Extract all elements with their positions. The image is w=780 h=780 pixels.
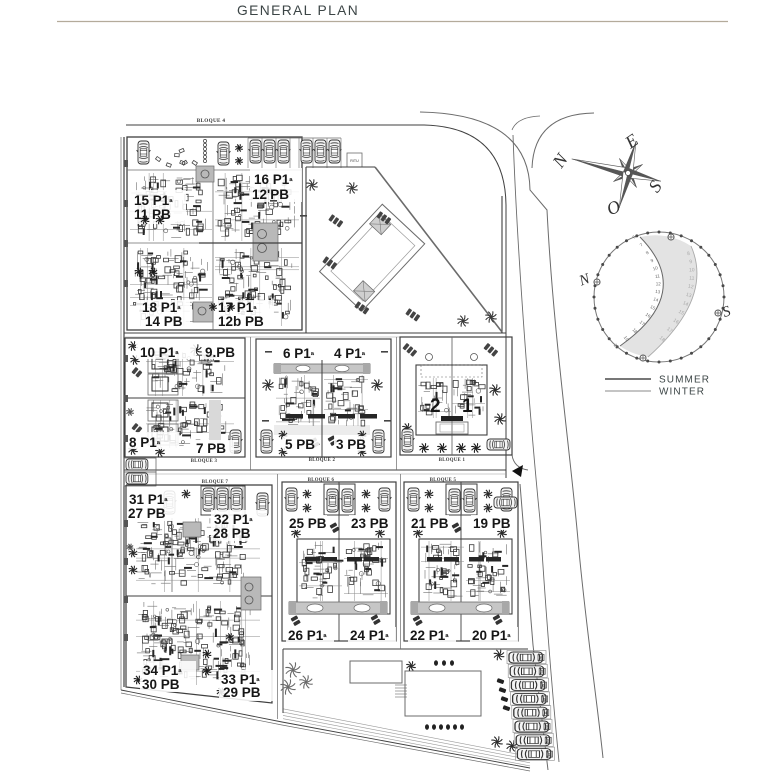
svg-text:9.PB: 9.PB <box>205 345 235 360</box>
svg-text:10: 10 <box>689 267 695 273</box>
svg-text:11 PB: 11 PB <box>134 207 171 222</box>
svg-text:18 P1ª: 18 P1ª <box>142 300 181 315</box>
svg-text:RITU: RITU <box>350 159 359 163</box>
svg-text:BLOQUE 7: BLOQUE 7 <box>202 480 229 485</box>
svg-text:BLOQUE 1: BLOQUE 1 <box>439 458 466 463</box>
svg-text:17 P1ª: 17 P1ª <box>218 300 257 315</box>
svg-text:BLOQUE 4: BLOQUE 4 <box>197 118 226 124</box>
svg-text:20 P1ª: 20 P1ª <box>472 628 511 643</box>
svg-text:BLOQUE 2: BLOQUE 2 <box>309 458 336 463</box>
svg-text:2: 2 <box>430 396 441 417</box>
svg-text:30 PB: 30 PB <box>142 677 180 692</box>
svg-text:4 P1ª: 4 P1ª <box>334 346 366 361</box>
svg-text:16 P1ª: 16 P1ª <box>254 172 293 187</box>
svg-text:6 P1ª: 6 P1ª <box>283 346 315 361</box>
svg-text:15 P1ª: 15 P1ª <box>134 193 173 208</box>
svg-text:12b PB: 12b PB <box>218 314 264 329</box>
svg-text:12'PB: 12'PB <box>252 187 289 202</box>
svg-text:27 PB: 27 PB <box>128 506 166 521</box>
svg-text:7 PB: 7 PB <box>196 441 226 456</box>
svg-text:GENERAL PLAN: GENERAL PLAN <box>237 3 359 18</box>
svg-text:32 P1ª: 32 P1ª <box>214 512 253 527</box>
svg-text:3 PB: 3 PB <box>336 437 366 452</box>
svg-text:1: 1 <box>462 396 473 417</box>
svg-text:8 P1ª: 8 P1ª <box>129 435 161 450</box>
svg-text:21 PB: 21 PB <box>411 516 449 531</box>
svg-text:23 PB: 23 PB <box>351 516 389 531</box>
svg-text:WINTER: WINTER <box>659 387 705 398</box>
svg-text:34 P1ª: 34 P1ª <box>143 663 182 678</box>
svg-text:28 PB: 28 PB <box>213 526 251 541</box>
svg-text:22 P1ª: 22 P1ª <box>410 628 449 643</box>
svg-text:BLOQUE 3: BLOQUE 3 <box>191 459 218 464</box>
svg-text:26 P1ª: 26 P1ª <box>288 628 327 643</box>
svg-text:14 PB: 14 PB <box>145 314 183 329</box>
svg-text:19 PB: 19 PB <box>473 516 511 531</box>
svg-text:25 PB: 25 PB <box>289 516 327 531</box>
svg-text:31 P1ª: 31 P1ª <box>129 492 168 507</box>
svg-text:11: 11 <box>689 275 695 281</box>
svg-text:5 PB: 5 PB <box>285 437 315 452</box>
svg-text:10 P1ª: 10 P1ª <box>140 345 179 360</box>
svg-text:12: 12 <box>656 281 662 286</box>
svg-text:24 P1ª: 24 P1ª <box>350 628 389 643</box>
svg-text:SUMMER: SUMMER <box>659 375 710 386</box>
svg-text:29 PB: 29 PB <box>223 685 261 700</box>
